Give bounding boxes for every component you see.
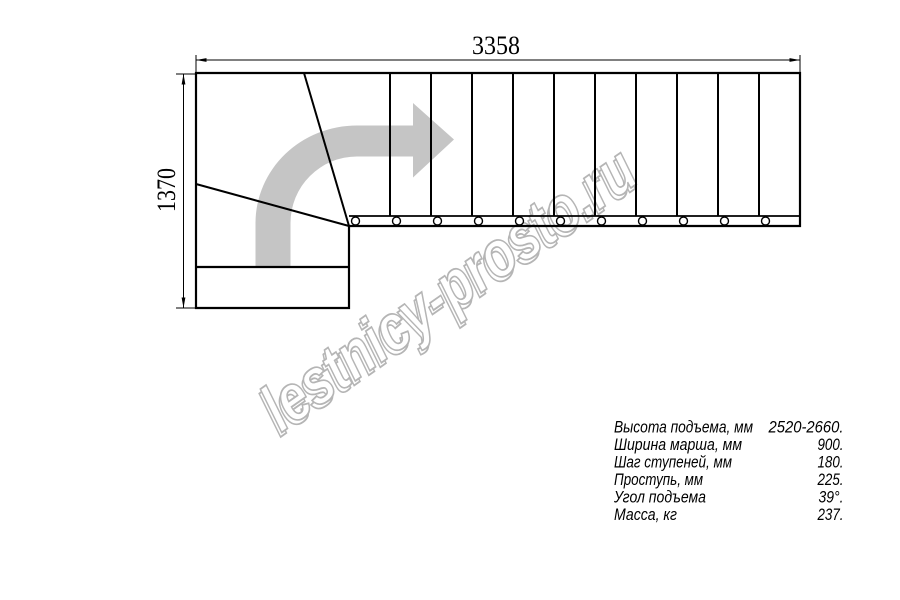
svg-text:900.: 900. [818, 435, 844, 454]
svg-text:2520-2660.: 2520-2660. [768, 418, 844, 437]
svg-text:180.: 180. [818, 453, 844, 472]
svg-text:Проступь, мм: Проступь, мм [614, 470, 703, 489]
svg-text:225.: 225. [817, 470, 844, 489]
svg-text:Высота подъема, мм: Высота подъема, мм [614, 418, 753, 437]
svg-text:Угол подъема: Угол подъема [613, 488, 706, 507]
svg-text:Ширина марша, мм: Ширина марша, мм [614, 435, 742, 454]
svg-text:Масса, кг: Масса, кг [614, 505, 677, 524]
svg-text:1370: 1370 [152, 168, 181, 212]
svg-text:237.: 237. [817, 505, 844, 524]
svg-text:39°.: 39°. [819, 488, 844, 507]
svg-text:3358: 3358 [472, 31, 520, 60]
svg-text:Шаг ступеней, мм: Шаг ступеней, мм [614, 453, 732, 472]
